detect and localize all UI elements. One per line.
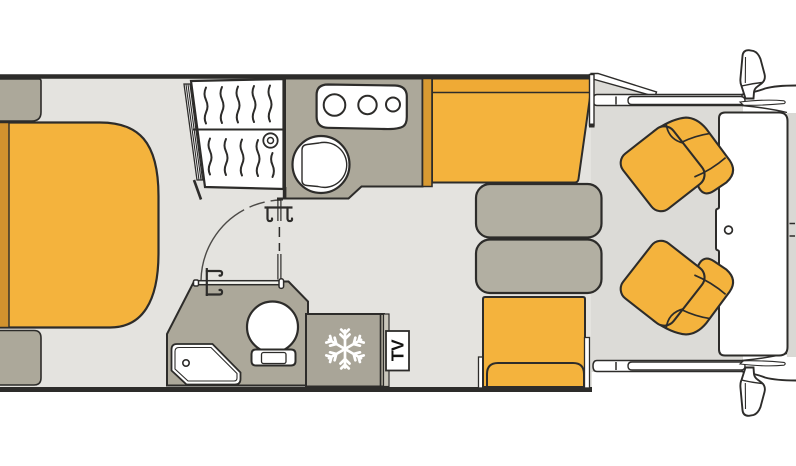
svg-text:TV: TV — [388, 339, 408, 361]
